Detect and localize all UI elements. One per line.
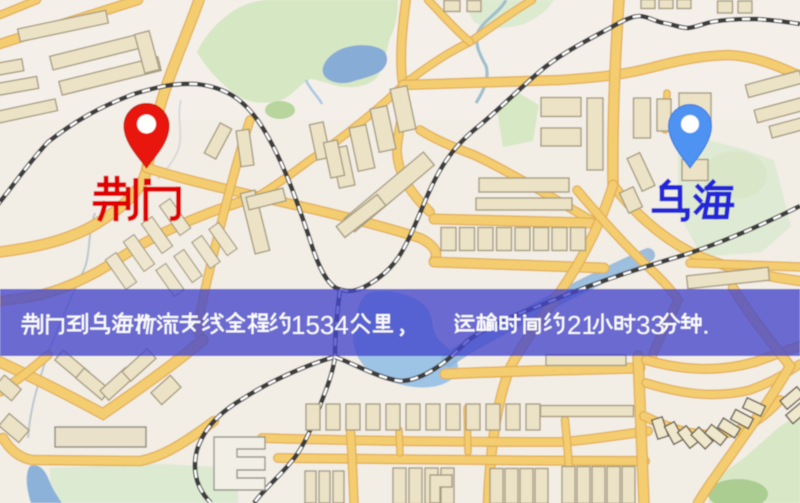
svg-text:33: 33 [636,310,665,340]
svg-text:21: 21 [567,310,596,340]
svg-text:1534: 1534 [291,310,349,340]
